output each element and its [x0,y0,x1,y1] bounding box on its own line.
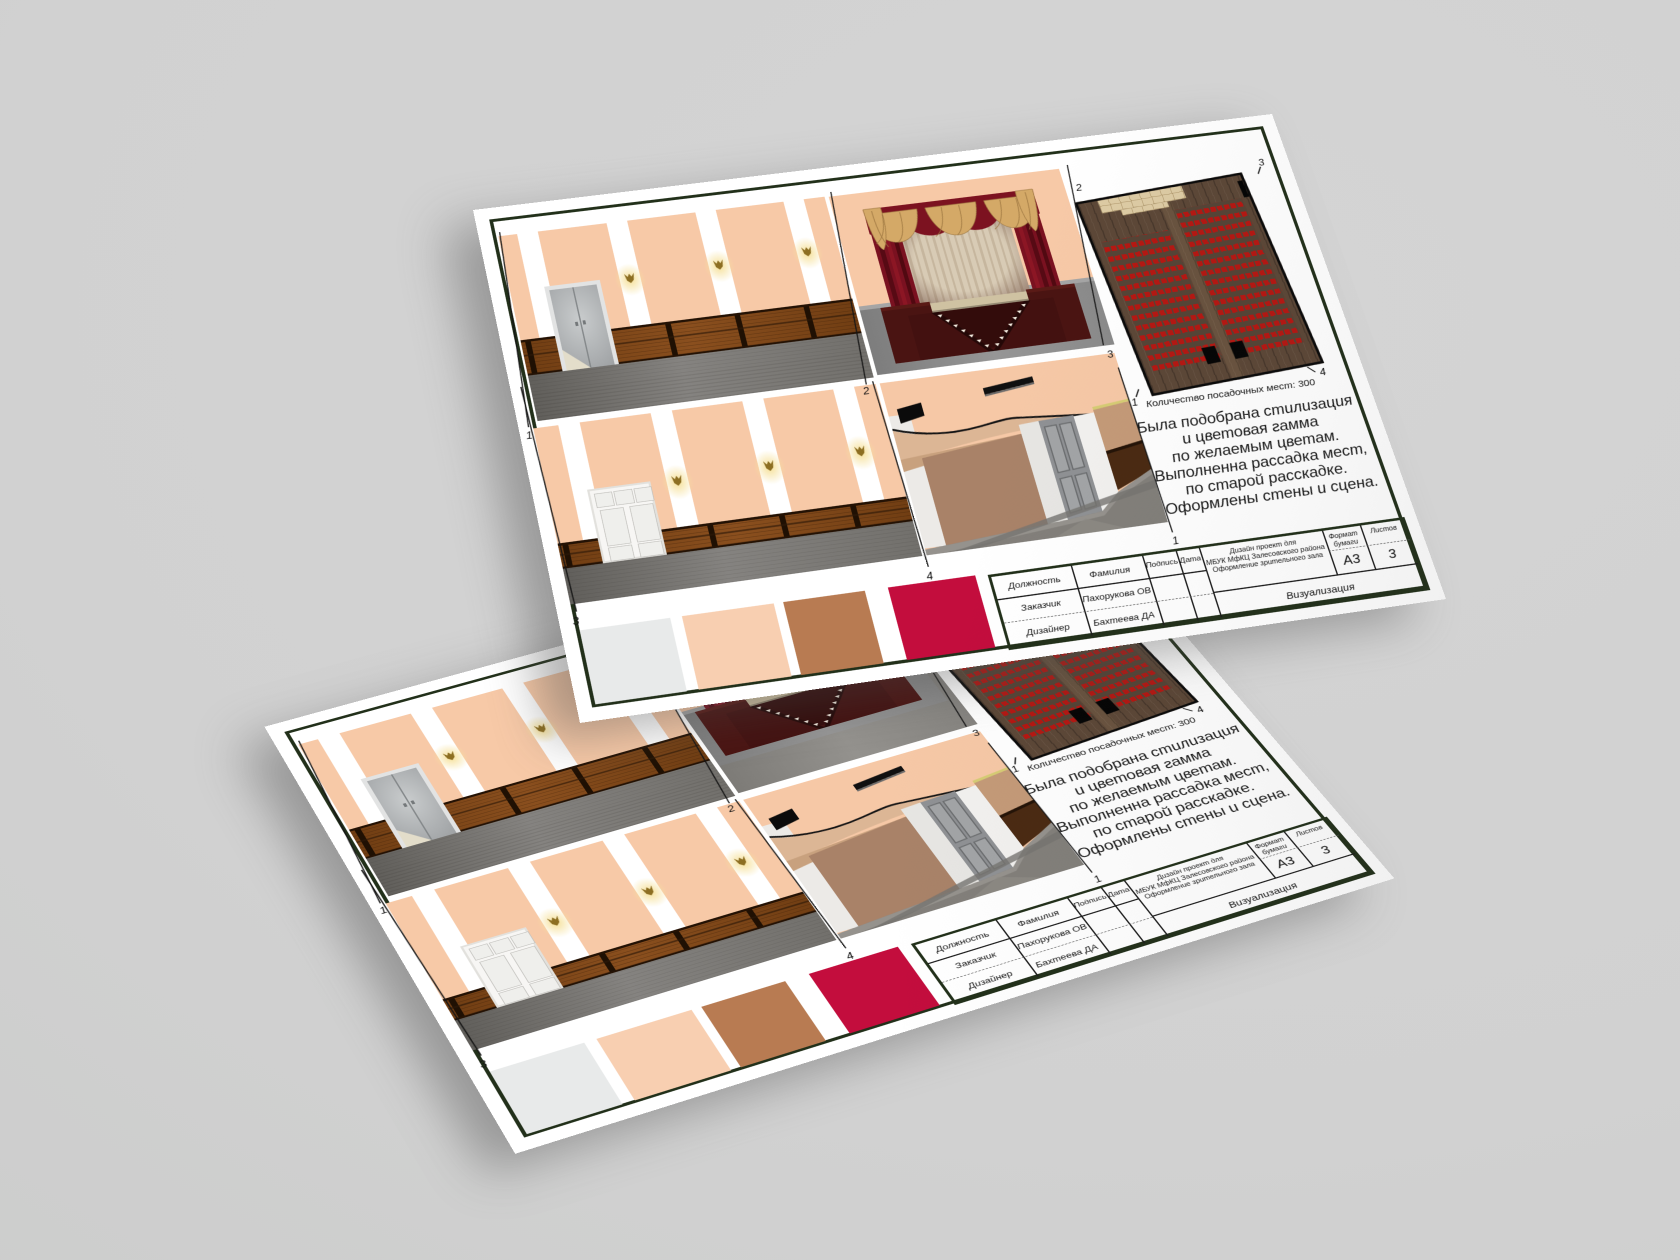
svg-text:3: 3 [477,1059,490,1071]
svg-text:1: 1 [1009,765,1022,775]
svg-text:4: 4 [1194,705,1207,715]
svg-text:3: 3 [1257,158,1267,168]
svg-text:4: 4 [925,571,935,583]
svg-text:1: 1 [1171,536,1181,548]
svg-text:2: 2 [724,804,738,815]
svg-text:1: 1 [1092,874,1105,885]
svg-text:3: 3 [1106,350,1116,361]
svg-text:2: 2 [1074,183,1084,193]
svg-text:4: 4 [844,951,858,962]
svg-text:2: 2 [861,386,872,397]
svg-text:4: 4 [1318,367,1328,378]
svg-text:3: 3 [572,616,581,628]
svg-text:3: 3 [970,729,983,739]
svg-text:1: 1 [378,906,390,917]
